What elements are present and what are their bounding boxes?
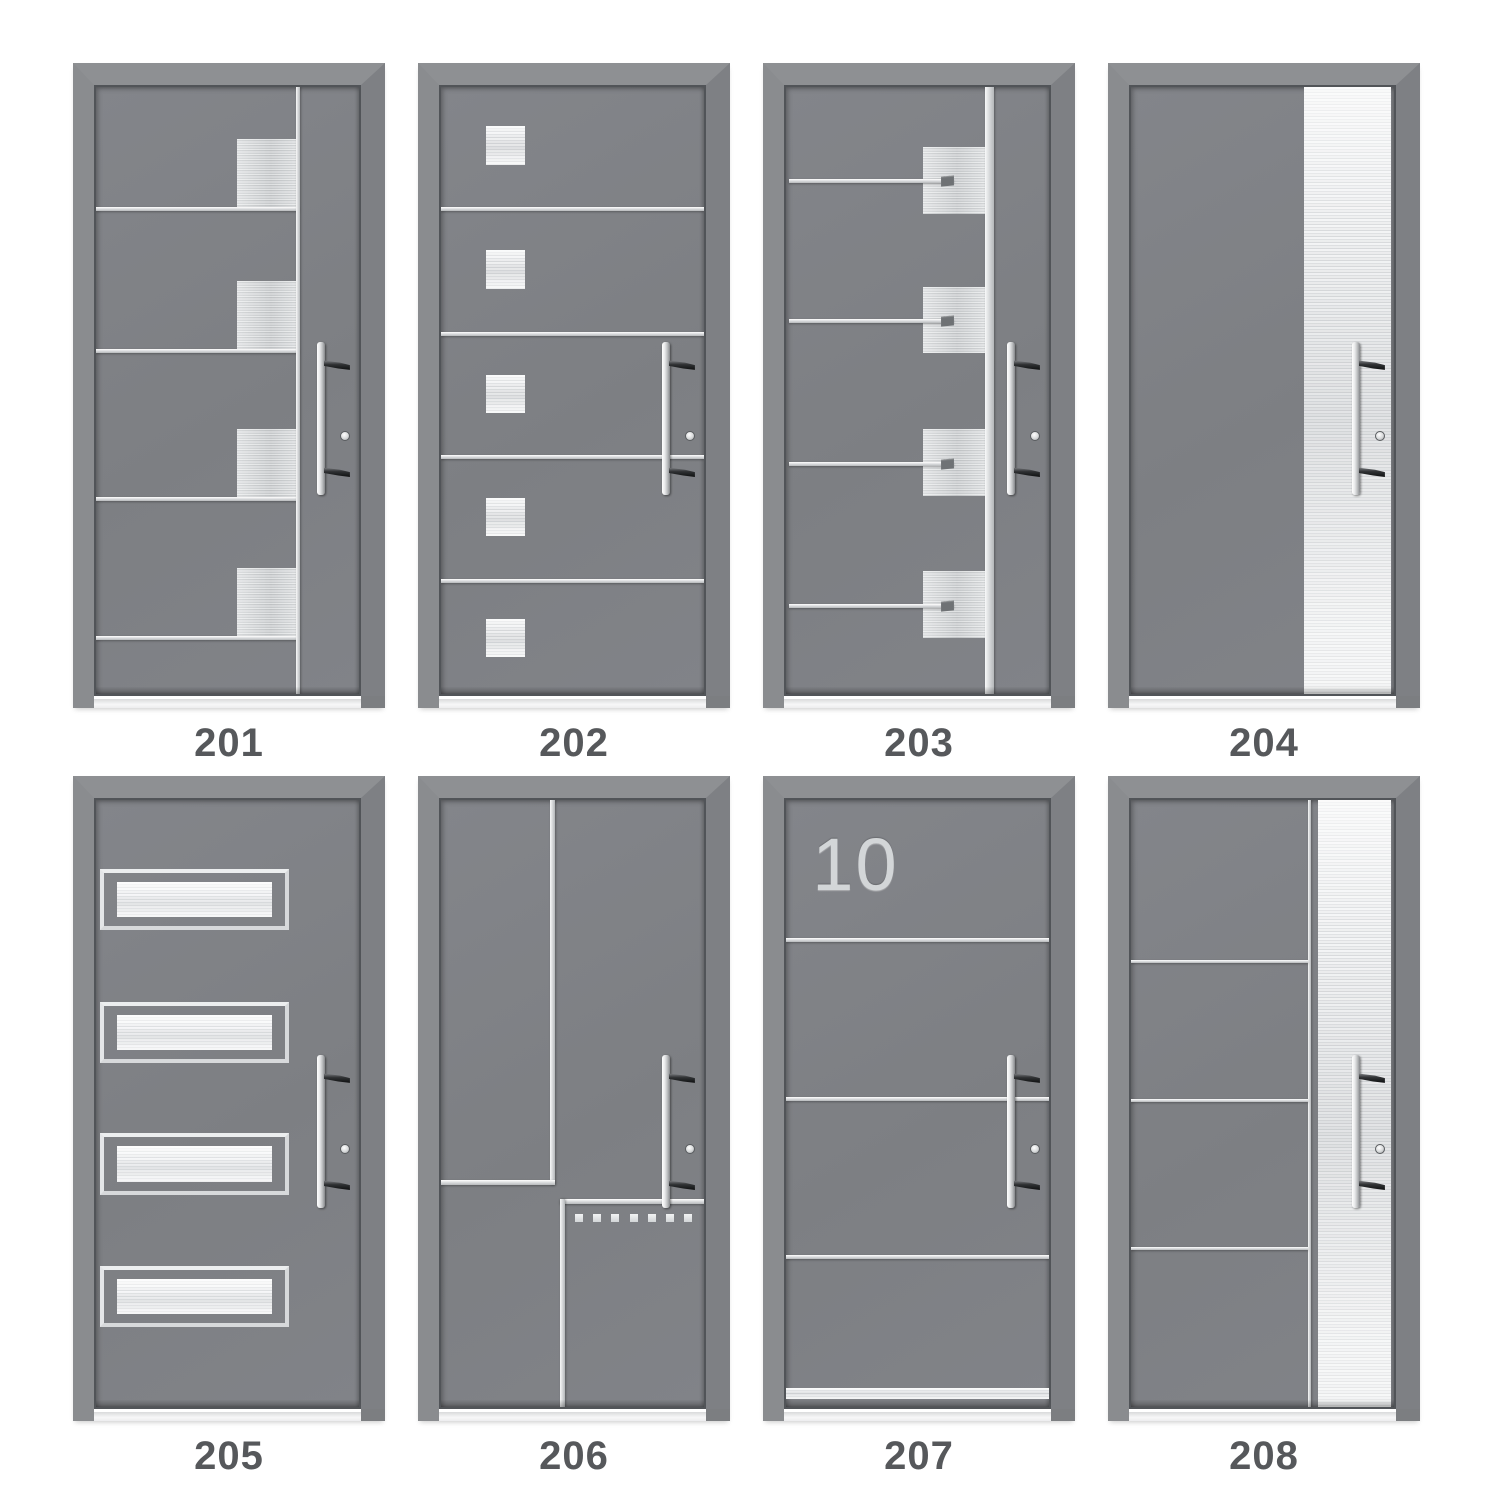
keyhole [685, 431, 695, 441]
door-card-207: 10 207 [763, 776, 1075, 1479]
steel-line-vertical [560, 1199, 565, 1407]
door-slab-204 [1129, 85, 1396, 696]
frame-leg-left [763, 1409, 784, 1421]
door-slab-205 [94, 798, 361, 1409]
door-handle [662, 1055, 696, 1208]
door-slab-203 [784, 85, 1051, 696]
keyhole [1375, 1144, 1385, 1154]
dotted-square-row [575, 1214, 692, 1222]
frame-leg-left [1108, 696, 1129, 708]
handle-bracket-bottom [1014, 1180, 1040, 1190]
steel-band-vertical [985, 87, 994, 694]
frame-leg-left [1108, 1409, 1129, 1421]
frame-leg-right [1396, 1409, 1420, 1421]
line-end-cap [941, 176, 954, 187]
steel-pointer-line [789, 319, 955, 323]
frame-leg-right [706, 1409, 730, 1421]
dot-square [611, 1214, 619, 1222]
line-end-cap [941, 600, 954, 611]
frame-leg-left [418, 1409, 439, 1421]
steel-line-horizontal [441, 207, 704, 211]
steel-line-horizontal [96, 636, 299, 640]
door-slab-206 [439, 798, 706, 1409]
door-card-204: 204 [1108, 63, 1420, 766]
steel-line-horizontal [96, 207, 299, 211]
frame-leg-left [763, 696, 784, 708]
handle-bracket-top [669, 360, 695, 370]
handle-bracket-bottom [669, 1180, 695, 1190]
handle-bar [317, 1055, 325, 1208]
handle-bracket-top [324, 360, 350, 370]
door-model-label: 202 [418, 721, 730, 766]
door-sill [784, 1412, 1051, 1421]
door-sill [94, 1412, 361, 1421]
steel-square [486, 375, 525, 413]
dot-square [630, 1214, 638, 1222]
door-sill [439, 1412, 706, 1421]
handle-bar [1352, 1055, 1360, 1208]
house-number: 10 [812, 828, 898, 902]
frame-leg-right [706, 696, 730, 708]
door-card-203: 203 [763, 63, 1075, 766]
steel-line-vertical [550, 800, 555, 1185]
handle-bracket-bottom [669, 467, 695, 477]
keyhole [1030, 1144, 1040, 1154]
door-frame-208 [1108, 776, 1420, 1421]
door-handle [1352, 342, 1386, 495]
door-frame-207: 10 [763, 776, 1075, 1421]
door-handle [317, 1055, 351, 1208]
handle-bracket-top [1014, 1073, 1040, 1083]
glass-strip [100, 869, 289, 931]
door-frame-203 [763, 63, 1075, 708]
glass-pane [117, 1279, 272, 1315]
handle-bar [662, 1055, 670, 1208]
steel-square [486, 126, 525, 164]
glass-strip [100, 1266, 289, 1328]
steel-block [237, 281, 298, 349]
door-sill [1129, 1412, 1396, 1421]
keyhole [685, 1144, 695, 1154]
steel-block [237, 139, 298, 207]
door-model-label: 205 [73, 1434, 385, 1479]
handle-bracket-top [324, 1073, 350, 1083]
door-card-206: 206 [418, 776, 730, 1479]
handle-bracket-bottom [1014, 467, 1040, 477]
keyhole [340, 431, 350, 441]
door-slab-201 [94, 85, 361, 696]
door-sill [1129, 699, 1396, 708]
steel-line-horizontal [441, 579, 704, 583]
door-frame-206 [418, 776, 730, 1421]
steel-line-horizontal [96, 349, 299, 353]
dot-square [575, 1214, 583, 1222]
steel-line-horizontal [1131, 960, 1308, 963]
frame-leg-right [1051, 696, 1075, 708]
kick-plate [786, 1388, 1049, 1400]
steel-line-vertical [1308, 800, 1311, 1407]
steel-square [486, 619, 525, 657]
door-slab-207: 10 [784, 798, 1051, 1409]
frame-leg-right [1051, 1409, 1075, 1421]
door-sill [439, 699, 706, 708]
steel-block [237, 429, 298, 497]
steel-pointer-line [789, 179, 955, 183]
steel-line-vertical [296, 87, 300, 694]
steel-line-horizontal [786, 1255, 1049, 1259]
frame-leg-right [1396, 696, 1420, 708]
handle-bar [1007, 342, 1015, 495]
door-model-label: 208 [1108, 1434, 1420, 1479]
door-model-label: 204 [1108, 721, 1420, 766]
steel-line-horizontal [441, 332, 704, 336]
steel-pointer-line [789, 462, 955, 466]
handle-bracket-top [1014, 360, 1040, 370]
door-slab-208 [1129, 798, 1396, 1409]
door-frame-204 [1108, 63, 1420, 708]
door-card-202: 202 [418, 63, 730, 766]
door-slab-202 [439, 85, 706, 696]
frame-leg-right [361, 696, 385, 708]
door-card-208: 208 [1108, 776, 1420, 1479]
line-end-cap [941, 315, 954, 326]
door-handle [1007, 1055, 1041, 1208]
handle-bracket-bottom [1359, 1180, 1385, 1190]
door-model-label: 206 [418, 1434, 730, 1479]
glass-strip [100, 1002, 289, 1064]
dot-square [666, 1214, 674, 1222]
dot-square [648, 1214, 656, 1222]
steel-line-horizontal [786, 938, 1049, 942]
door-model-label: 203 [763, 721, 1075, 766]
door-frame-205 [73, 776, 385, 1421]
steel-square [486, 498, 525, 536]
handle-bar [662, 342, 670, 495]
door-catalog: 201 [73, 63, 1420, 1479]
keyhole [340, 1144, 350, 1154]
door-card-201: 201 [73, 63, 385, 766]
handle-bar [1352, 342, 1360, 495]
frame-leg-left [73, 1409, 94, 1421]
handle-bracket-bottom [1359, 467, 1385, 477]
door-handle [317, 342, 351, 495]
door-sill [94, 699, 361, 708]
handle-bracket-top [1359, 1073, 1385, 1083]
handle-bar [1007, 1055, 1015, 1208]
door-card-205: 205 [73, 776, 385, 1479]
door-frame-201 [73, 63, 385, 708]
door-handle [1352, 1055, 1386, 1208]
dot-square [684, 1214, 692, 1222]
steel-square [486, 250, 525, 288]
frame-leg-left [73, 696, 94, 708]
steel-block [237, 568, 298, 636]
handle-bracket-bottom [324, 467, 350, 477]
steel-line-horizontal [1131, 1247, 1308, 1250]
door-handle [1007, 342, 1041, 495]
handle-bracket-bottom [324, 1180, 350, 1190]
door-sill [784, 699, 1051, 708]
line-end-cap [941, 458, 954, 469]
door-handle [662, 342, 696, 495]
frame-leg-right [361, 1409, 385, 1421]
door-model-label: 207 [763, 1434, 1075, 1479]
frame-leg-left [418, 696, 439, 708]
door-frame-202 [418, 63, 730, 708]
glass-pane [117, 882, 272, 918]
keyhole [1030, 431, 1040, 441]
steel-pointer-line [789, 604, 955, 608]
glass-pane [117, 1146, 272, 1182]
keyhole [1375, 431, 1385, 441]
handle-bracket-top [1359, 360, 1385, 370]
dot-square [593, 1214, 601, 1222]
steel-line-horizontal [96, 497, 299, 501]
glass-pane [117, 1015, 272, 1051]
glass-strip [100, 1133, 289, 1195]
steel-line-horizontal [441, 1180, 555, 1185]
door-model-label: 201 [73, 721, 385, 766]
steel-line-horizontal [1131, 1099, 1308, 1102]
handle-bracket-top [669, 1073, 695, 1083]
handle-bar [317, 342, 325, 495]
